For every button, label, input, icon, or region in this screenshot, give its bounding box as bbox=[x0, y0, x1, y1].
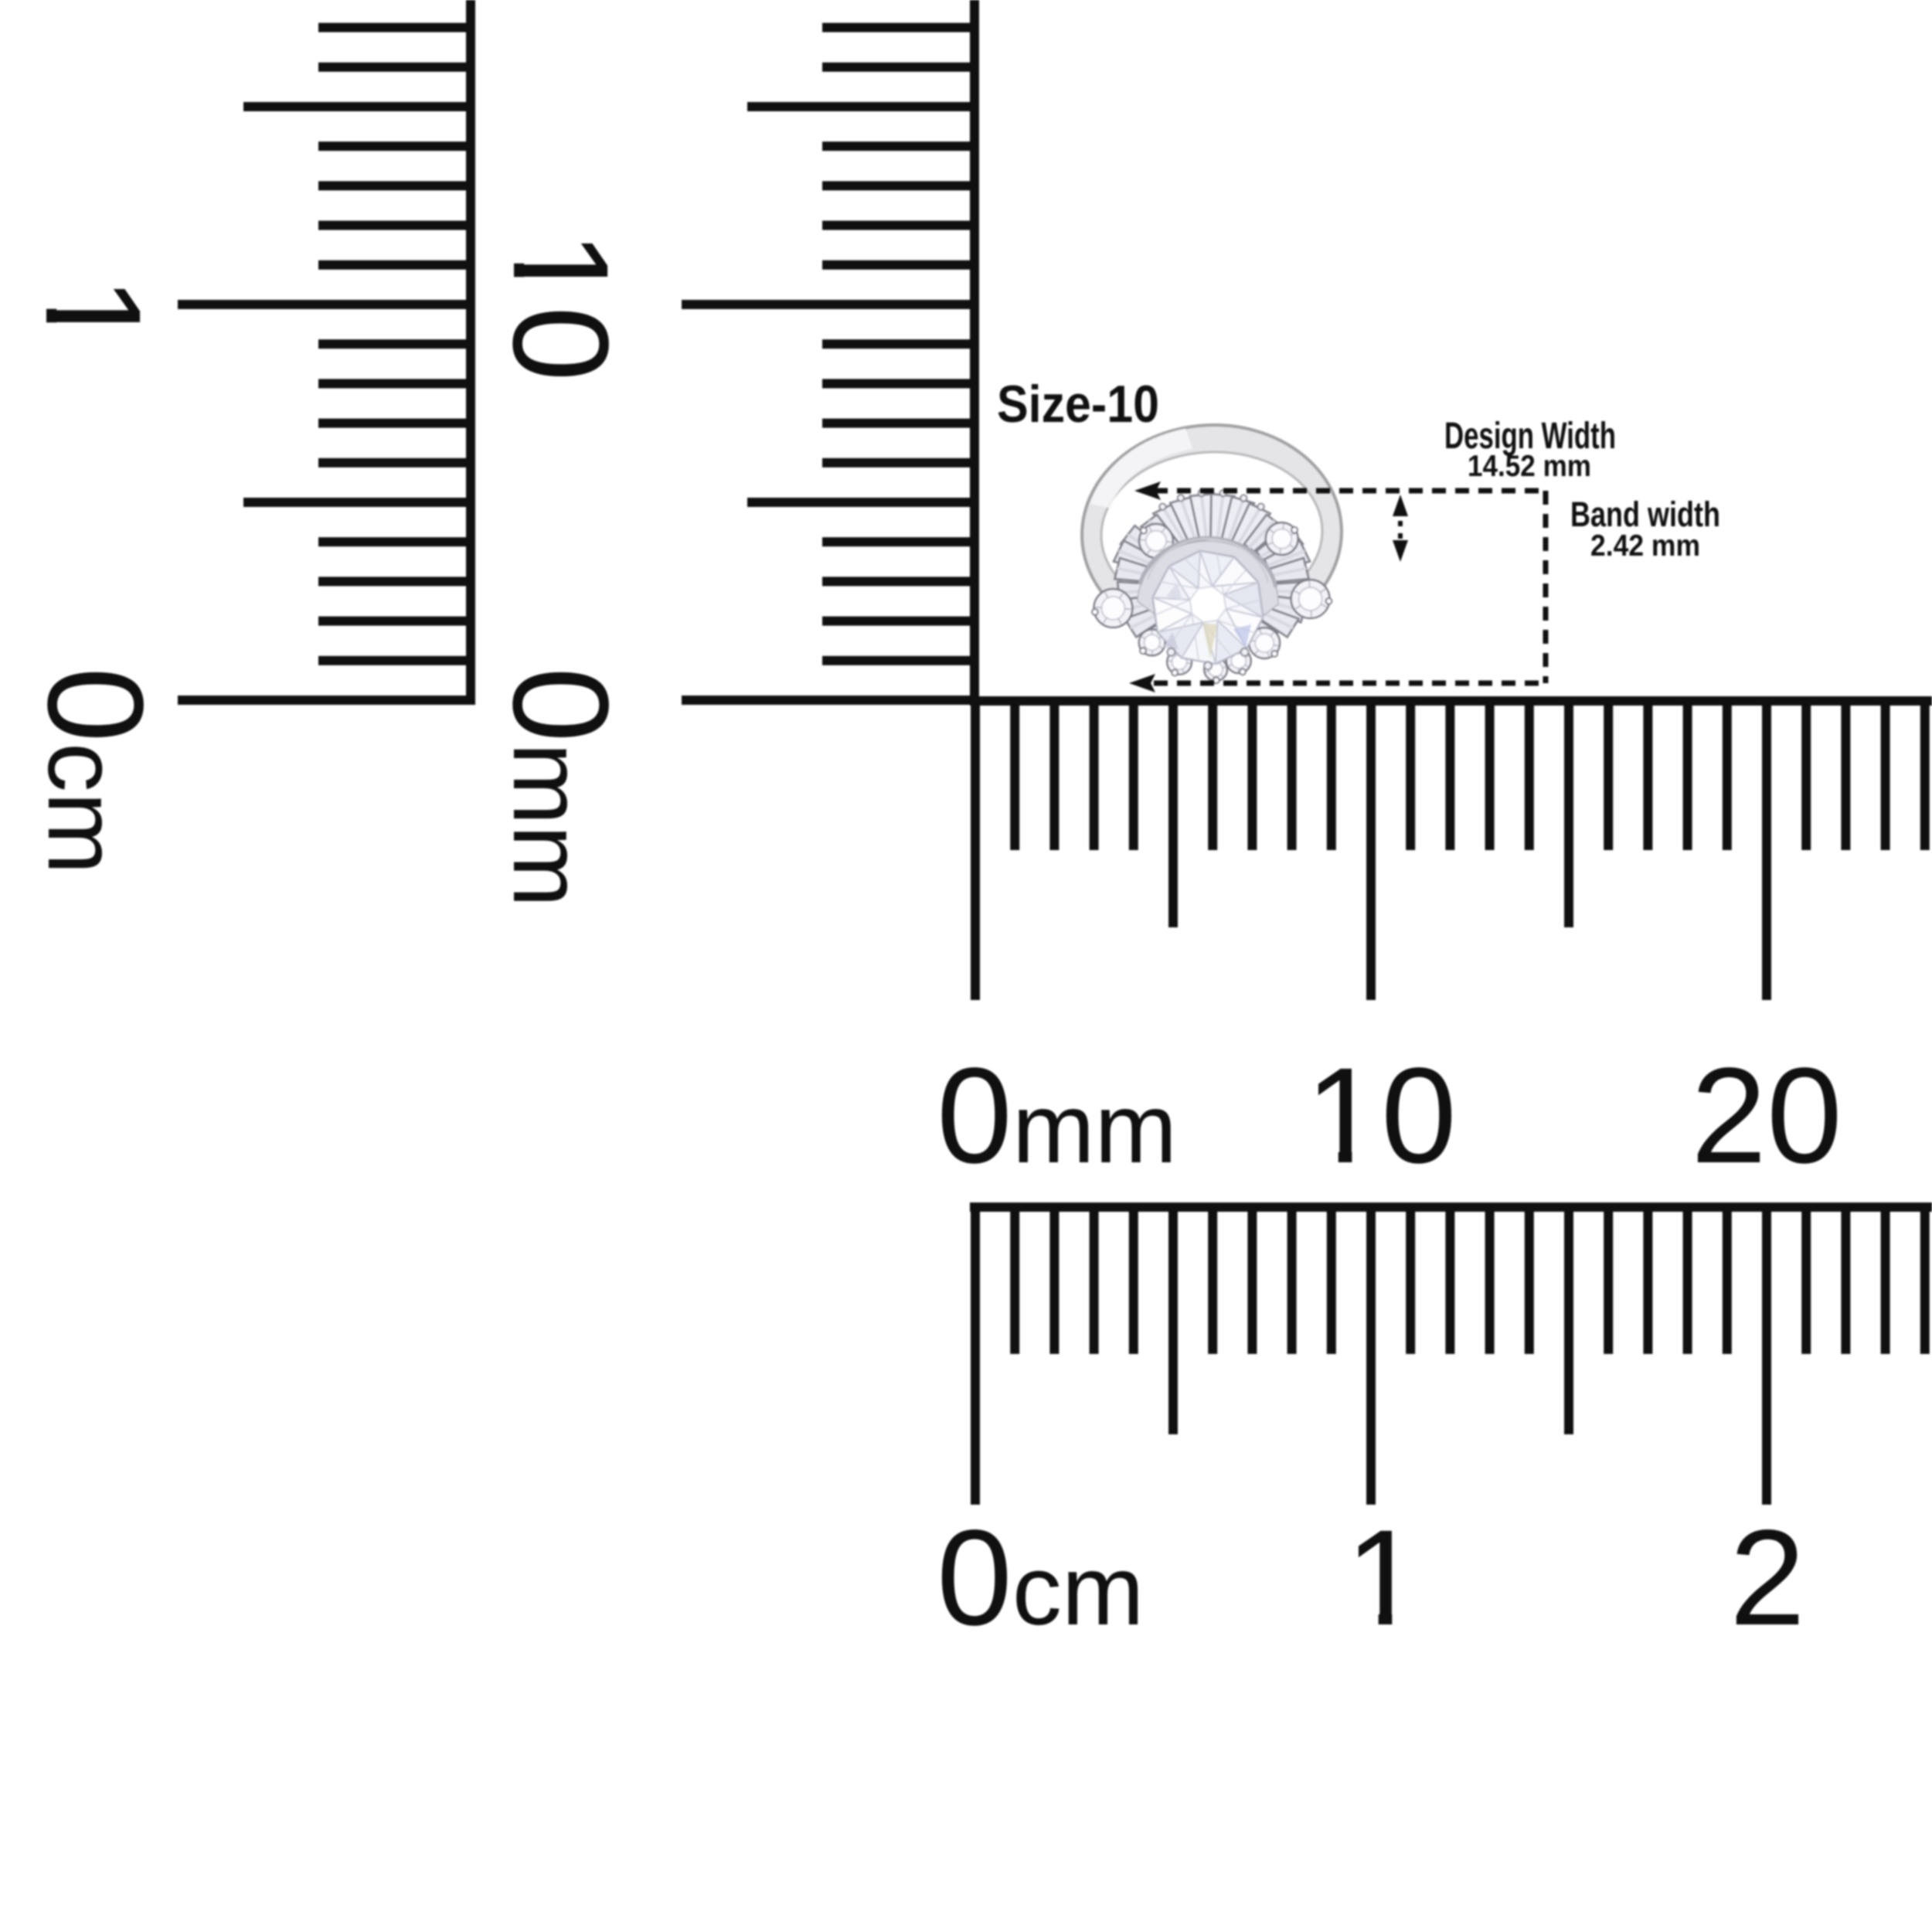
svg-text:2: 2 bbox=[1730, 1502, 1805, 1654]
svg-text:2.42 mm: 2.42 mm bbox=[1590, 529, 1700, 563]
svg-text:1: 1 bbox=[1345, 1502, 1421, 1654]
svg-text:Size-10: Size-10 bbox=[997, 375, 1159, 434]
svg-text:20: 20 bbox=[1691, 1040, 1842, 1192]
svg-text:Band width: Band width bbox=[1570, 495, 1720, 534]
svg-text:10: 10 bbox=[485, 230, 636, 382]
svg-text:1: 1 bbox=[17, 276, 168, 352]
svg-text:14.52 mm: 14.52 mm bbox=[1468, 450, 1591, 483]
svg-text:10: 10 bbox=[1305, 1040, 1457, 1192]
